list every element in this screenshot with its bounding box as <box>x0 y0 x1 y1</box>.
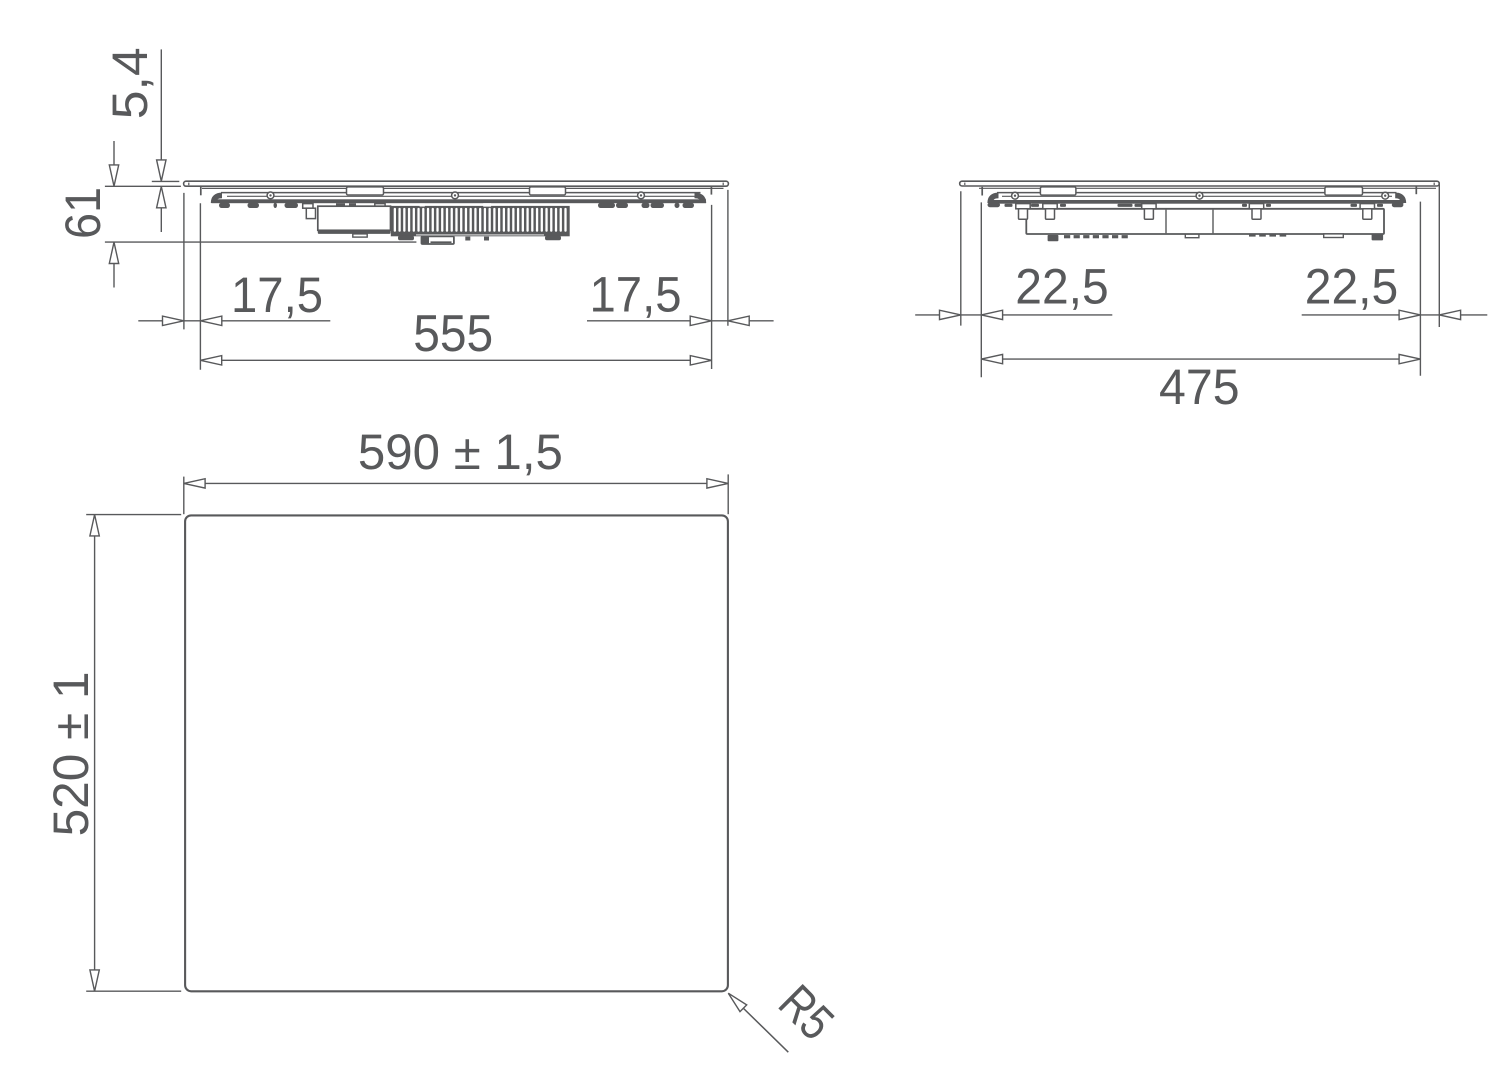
svg-text:22,5: 22,5 <box>1015 259 1109 315</box>
svg-text:555: 555 <box>413 305 493 363</box>
svg-text:R5: R5 <box>768 974 844 1050</box>
svg-text:590 ± 1,5: 590 ± 1,5 <box>358 424 563 480</box>
svg-text:17,5: 17,5 <box>231 267 323 323</box>
svg-text:22,5: 22,5 <box>1305 259 1399 315</box>
svg-text:475: 475 <box>1159 359 1240 415</box>
svg-text:17,5: 17,5 <box>590 267 682 323</box>
svg-text:520 ± 1: 520 ± 1 <box>43 671 99 836</box>
svg-text:5,4: 5,4 <box>102 47 158 119</box>
svg-text:61: 61 <box>55 187 111 239</box>
